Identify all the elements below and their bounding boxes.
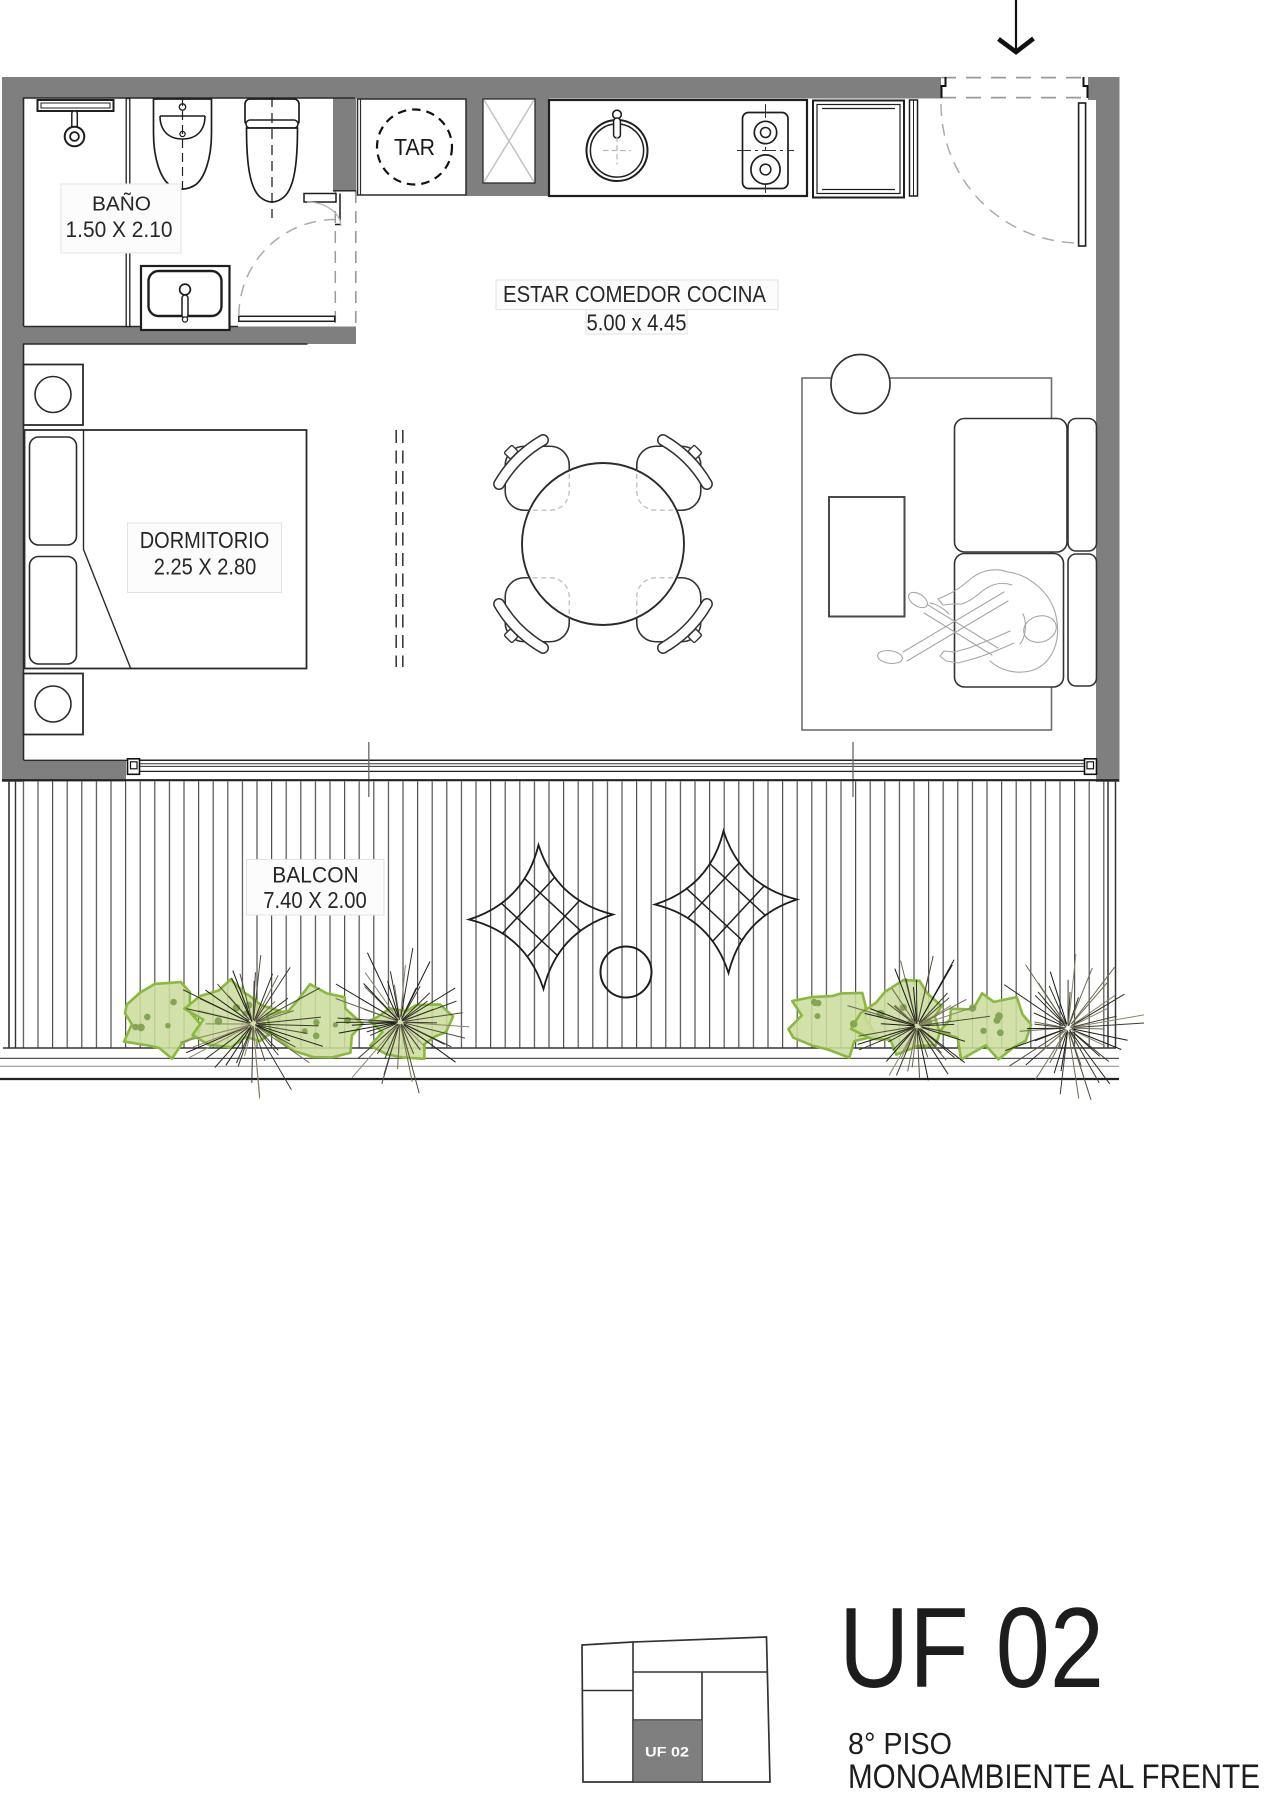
svg-text:2.25 X 2.80: 2.25 X 2.80 [154,554,257,580]
svg-text:TAR: TAR [394,134,435,160]
svg-text:BAÑO: BAÑO [92,192,151,216]
svg-text:UF 02: UF 02 [645,1744,689,1760]
svg-text:7.40 X 2.00: 7.40 X 2.00 [263,887,367,913]
svg-text:UF 02: UF 02 [839,1585,1104,1712]
svg-text:1.50 X 2.10: 1.50 X 2.10 [66,217,173,242]
svg-text:BALCON: BALCON [272,863,359,888]
svg-text:MONOAMBIENTE AL FRENTE: MONOAMBIENTE AL FRENTE [848,1758,1260,1796]
svg-text:8° PISO: 8° PISO [848,1726,952,1761]
svg-text:ESTAR COMEDOR COCINA: ESTAR COMEDOR COCINA [503,281,767,307]
svg-text:5.00 x 4.45: 5.00 x 4.45 [587,310,687,336]
svg-text:DORMITORIO: DORMITORIO [140,527,270,553]
